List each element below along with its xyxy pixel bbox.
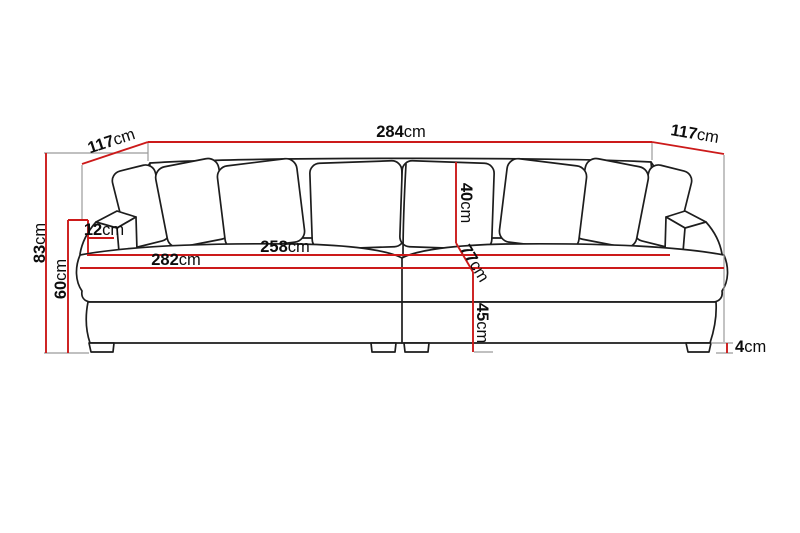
pillow-3: [216, 157, 306, 250]
sofa-leg-right: [686, 343, 711, 352]
sofa-leg-left: [89, 343, 114, 352]
sofa-dimension-diagram: 284cm 117cm 117cm 83cm 60cm 12cm 258cm 2…: [0, 0, 800, 533]
dim-cushion-height-label: 40cm: [457, 183, 475, 223]
pillow-5: [400, 160, 495, 249]
dim-seat-height-label: 45cm: [473, 303, 491, 343]
dim-overall-width-label: 284cm: [376, 123, 426, 141]
dim-arm-width-label: 12cm: [84, 221, 124, 239]
dim-seat-width-label: 282cm: [151, 251, 201, 269]
dim-back-height-label: 60cm: [52, 259, 70, 299]
pillow-4: [310, 160, 405, 249]
dim-leg-height-label: 4cm: [735, 338, 766, 356]
dim-depth-right-label: 117cm: [669, 121, 720, 147]
pillow-6: [498, 157, 588, 250]
diagram-svg: 284cm 117cm 117cm 83cm 60cm 12cm 258cm 2…: [0, 0, 800, 533]
dim-inner-width-label: 258cm: [260, 238, 310, 256]
dim-total-height-label: 83cm: [31, 223, 49, 263]
sofa-arm-right: [665, 211, 722, 254]
sofa-leg-center-left: [371, 343, 396, 352]
sofa-leg-center-right: [404, 343, 429, 352]
